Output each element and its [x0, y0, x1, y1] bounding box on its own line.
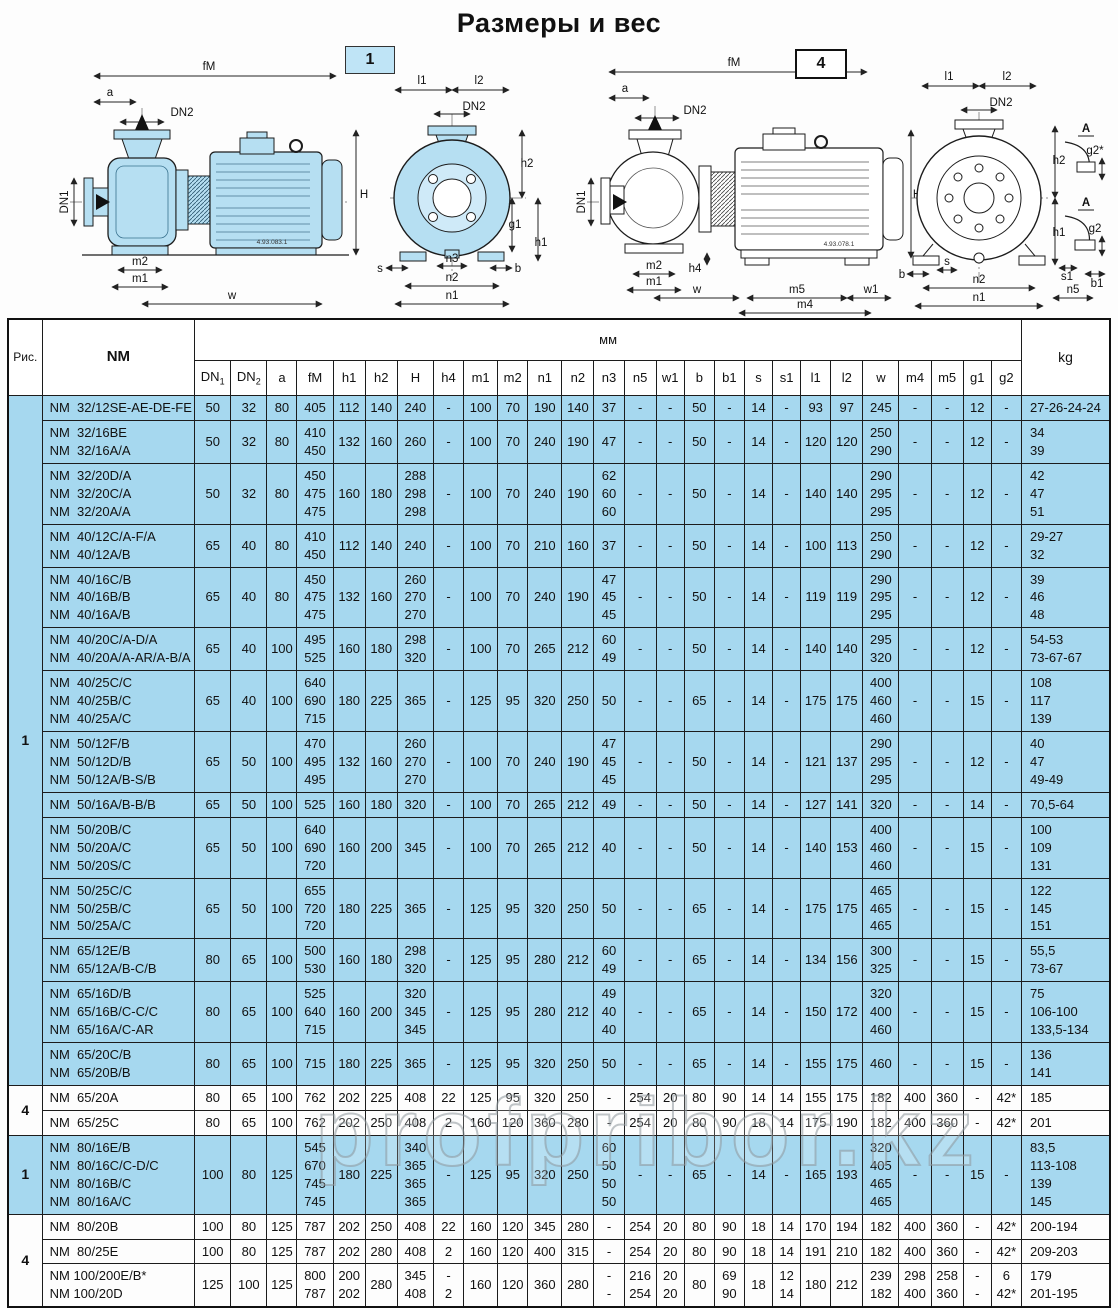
- value-cell: 80: [267, 420, 297, 463]
- value-cell: 15: [963, 1135, 991, 1214]
- model-cell: NM 40/12C/A-F/A NM 40/12A/B: [42, 524, 195, 567]
- value-cell: -: [931, 671, 963, 732]
- value-cell: 14: [744, 878, 772, 939]
- value-cell: 65: [195, 671, 231, 732]
- value-cell: -: [714, 817, 744, 878]
- col-header: g2: [991, 361, 1021, 396]
- value-cell: 65: [684, 1043, 714, 1086]
- value-cell: 50: [195, 420, 231, 463]
- value-cell: 172: [831, 982, 863, 1043]
- value-cell: 240: [528, 420, 562, 463]
- model-header: NM: [42, 319, 195, 396]
- value-cell: 22: [433, 1214, 463, 1239]
- value-cell: -: [433, 939, 463, 982]
- value-cell: -: [433, 628, 463, 671]
- value-cell: 65: [195, 524, 231, 567]
- value-cell: -: [594, 1214, 624, 1239]
- value-cell: -: [773, 878, 801, 939]
- value-cell: 95: [498, 1135, 528, 1214]
- value-cell: 141: [831, 792, 863, 817]
- value-cell: 2: [433, 1110, 463, 1135]
- value-cell: -: [714, 792, 744, 817]
- value-cell: 80: [231, 1239, 267, 1264]
- kg-cell: 100 109 131: [1022, 817, 1110, 878]
- dim-label: l2: [475, 75, 484, 87]
- value-cell: 50: [594, 1043, 624, 1086]
- value-cell: 405: [297, 396, 333, 421]
- table-row: NM 80/25E1008012578720228040821601204003…: [8, 1239, 1110, 1264]
- flow-arrow-up: [648, 115, 662, 130]
- value-cell: -: [991, 463, 1021, 524]
- value-cell: 12: [963, 732, 991, 793]
- value-cell: -: [991, 982, 1021, 1043]
- value-cell: 47 45 45: [594, 732, 624, 793]
- value-cell: 182: [863, 1239, 899, 1264]
- value-cell: -: [991, 420, 1021, 463]
- value-cell: 125: [464, 878, 498, 939]
- value-cell: 250: [562, 1043, 594, 1086]
- terminal-box: [763, 134, 805, 150]
- value-cell: 212: [562, 939, 594, 982]
- value-cell: 50: [684, 396, 714, 421]
- value-cell: 298 400: [899, 1264, 931, 1307]
- detail-label: A: [1082, 197, 1090, 209]
- value-cell: -: [899, 567, 931, 628]
- value-cell: -: [624, 732, 656, 793]
- value-cell: 160: [333, 817, 365, 878]
- value-cell: 112: [333, 396, 365, 421]
- value-cell: 360: [931, 1239, 963, 1264]
- value-cell: 320: [528, 1043, 562, 1086]
- value-cell: 160: [464, 1214, 498, 1239]
- value-cell: 100: [267, 1110, 297, 1135]
- value-cell: 40: [594, 817, 624, 878]
- value-cell: 125: [464, 1043, 498, 1086]
- value-cell: 95: [498, 878, 528, 939]
- value-cell: 250: [562, 878, 594, 939]
- value-cell: 400: [899, 1110, 931, 1135]
- value-cell: 320: [528, 1085, 562, 1110]
- dim-label: n2: [973, 274, 986, 286]
- value-cell: -: [433, 396, 463, 421]
- value-cell: 120: [831, 420, 863, 463]
- value-cell: -: [714, 396, 744, 421]
- col-header: w1: [656, 361, 684, 396]
- dim-label: b: [515, 263, 521, 275]
- model-cell: NM 65/16D/B NM 65/16B/C-C/C NM 65/16A/C-…: [42, 982, 195, 1043]
- value-cell: -: [931, 1135, 963, 1214]
- value-cell: 290 295 295: [863, 463, 899, 524]
- model-cell: NM 40/25C/C NM 40/25B/C NM 40/25A/C: [42, 671, 195, 732]
- value-cell: -: [899, 420, 931, 463]
- value-cell: 240: [397, 524, 433, 567]
- fig-cell: 4: [8, 1085, 42, 1135]
- value-cell: 47 45 45: [594, 567, 624, 628]
- value-cell: 95: [498, 671, 528, 732]
- col-header: n3: [594, 361, 624, 396]
- value-cell: 65: [684, 939, 714, 982]
- value-cell: 190: [562, 463, 594, 524]
- value-cell: 360: [931, 1214, 963, 1239]
- value-cell: 365: [397, 878, 433, 939]
- value-cell: 254: [624, 1214, 656, 1239]
- value-cell: 50: [684, 792, 714, 817]
- value-cell: 180: [333, 671, 365, 732]
- value-cell: 14: [744, 524, 772, 567]
- detail-label: A: [1082, 123, 1090, 135]
- value-cell: 14: [744, 817, 772, 878]
- value-cell: 80: [267, 567, 297, 628]
- col-header: h4: [433, 361, 463, 396]
- table-row: NM 65/20C/B NM 65/20B/B80651007151802253…: [8, 1043, 1110, 1086]
- value-cell: -: [963, 1239, 991, 1264]
- table-row: NM 50/12F/B NM 50/12D/B NM 50/12A/B-S/B6…: [8, 732, 1110, 793]
- value-cell: 460: [863, 1043, 899, 1086]
- value-cell: 112: [333, 524, 365, 567]
- dim-label: l1: [418, 75, 427, 87]
- value-cell: 90: [714, 1214, 744, 1239]
- dimensions-table: Рис.NMммkgDN1DN2afMh1h2Hh4m1m2n1n2n3n5w1…: [7, 318, 1111, 1308]
- dim-label: fM: [203, 61, 216, 73]
- value-cell: -: [656, 982, 684, 1043]
- value-cell: 65: [195, 817, 231, 878]
- value-cell: 212: [562, 982, 594, 1043]
- value-cell: -: [899, 817, 931, 878]
- col-header: DN2: [231, 361, 267, 396]
- value-cell: -: [931, 982, 963, 1043]
- value-cell: -: [991, 396, 1021, 421]
- value-cell: 22: [433, 1085, 463, 1110]
- value-cell: 20: [656, 1239, 684, 1264]
- value-cell: 119: [801, 567, 831, 628]
- value-cell: -: [433, 567, 463, 628]
- value-cell: 125: [267, 1214, 297, 1239]
- value-cell: 50: [684, 732, 714, 793]
- value-cell: -: [931, 524, 963, 567]
- value-cell: 14: [744, 1135, 772, 1214]
- value-cell: 265: [528, 628, 562, 671]
- value-cell: 160: [365, 420, 397, 463]
- value-cell: 90: [714, 1110, 744, 1135]
- value-cell: -: [931, 628, 963, 671]
- value-cell: 280: [562, 1214, 594, 1239]
- value-cell: 400 460 460: [863, 817, 899, 878]
- value-cell: 165: [801, 1135, 831, 1214]
- value-cell: 295 320: [863, 628, 899, 671]
- value-cell: 180: [365, 792, 397, 817]
- value-cell: -: [899, 396, 931, 421]
- value-cell: 100: [267, 817, 297, 878]
- value-cell: 12: [963, 524, 991, 567]
- value-cell: 93: [801, 396, 831, 421]
- value-cell: 175: [801, 1110, 831, 1135]
- col-header: h2: [365, 361, 397, 396]
- value-cell: 15: [963, 671, 991, 732]
- value-cell: -: [899, 982, 931, 1043]
- value-cell: 14: [744, 463, 772, 524]
- value-cell: -: [656, 420, 684, 463]
- value-cell: 119: [831, 567, 863, 628]
- value-cell: 50: [684, 628, 714, 671]
- value-cell: 100: [464, 420, 498, 463]
- value-cell: -: [656, 939, 684, 982]
- kg-cell: 29-27 32: [1022, 524, 1110, 567]
- kg-cell: 179 201-195: [1022, 1264, 1110, 1307]
- dim-label: a: [107, 87, 114, 99]
- value-cell: 125: [464, 1135, 498, 1214]
- value-cell: -: [991, 817, 1021, 878]
- value-cell: 225: [365, 1135, 397, 1214]
- value-cell: -: [963, 1110, 991, 1135]
- value-cell: 70: [498, 396, 528, 421]
- value-cell: 80: [267, 396, 297, 421]
- value-cell: 280: [365, 1264, 397, 1307]
- value-cell: 212: [562, 792, 594, 817]
- value-cell: 12: [963, 463, 991, 524]
- value-cell: 450 475 475: [297, 567, 333, 628]
- kg-cell: 40 47 49-49: [1022, 732, 1110, 793]
- value-cell: 210: [831, 1239, 863, 1264]
- value-cell: 70: [498, 524, 528, 567]
- value-cell: 175: [831, 878, 863, 939]
- dim-label: DN2: [170, 107, 193, 119]
- value-cell: 175: [801, 878, 831, 939]
- kg-cell: 136 141: [1022, 1043, 1110, 1086]
- value-cell: 97: [831, 396, 863, 421]
- value-cell: 65: [195, 567, 231, 628]
- value-cell: 42*: [991, 1085, 1021, 1110]
- value-cell: 70: [498, 732, 528, 793]
- value-cell: 640 690 720: [297, 817, 333, 878]
- dim-label: a: [622, 83, 629, 95]
- value-cell: 100: [267, 792, 297, 817]
- kg-cell: 39 46 48: [1022, 567, 1110, 628]
- value-cell: 50: [195, 463, 231, 524]
- col-header: h1: [333, 361, 365, 396]
- value-cell: 180: [333, 1043, 365, 1086]
- value-cell: 95: [498, 982, 528, 1043]
- value-cell: 320 400 460: [863, 982, 899, 1043]
- value-cell: 212: [562, 628, 594, 671]
- value-cell: 762: [297, 1085, 333, 1110]
- value-cell: -: [714, 524, 744, 567]
- dim-label: DN1: [59, 190, 71, 213]
- value-cell: -: [714, 732, 744, 793]
- value-cell: 65: [231, 982, 267, 1043]
- value-cell: -: [931, 878, 963, 939]
- value-cell: 18: [744, 1239, 772, 1264]
- value-cell: 80: [231, 1135, 267, 1214]
- value-cell: -: [594, 1239, 624, 1264]
- value-cell: 40: [231, 524, 267, 567]
- col-header: H: [397, 361, 433, 396]
- value-cell: -: [899, 1043, 931, 1086]
- value-cell: -: [624, 792, 656, 817]
- value-cell: 320: [397, 792, 433, 817]
- model-cell: NM 32/16BE NM 32/16A/A: [42, 420, 195, 463]
- value-cell: -: [773, 671, 801, 732]
- value-cell: 640 690 715: [297, 671, 333, 732]
- value-cell: 160: [365, 567, 397, 628]
- value-cell: 400 460 460: [863, 671, 899, 732]
- dim-label: DN2: [683, 105, 706, 117]
- value-cell: 408: [397, 1085, 433, 1110]
- value-cell: 80: [684, 1085, 714, 1110]
- dim-label: h1: [1053, 227, 1066, 239]
- value-cell: -: [773, 463, 801, 524]
- table-row: NM 50/20B/C NM 50/20A/C NM 50/20S/C65501…: [8, 817, 1110, 878]
- value-cell: -: [656, 628, 684, 671]
- value-cell: 320: [863, 792, 899, 817]
- value-cell: 70: [498, 792, 528, 817]
- value-cell: 80: [195, 939, 231, 982]
- value-cell: 280: [365, 1239, 397, 1264]
- value-cell: 20: [656, 1085, 684, 1110]
- value-cell: 14: [773, 1214, 801, 1239]
- kg-cell: 70,5-64: [1022, 792, 1110, 817]
- value-cell: -: [656, 463, 684, 524]
- dim-label: n1: [446, 290, 459, 302]
- value-cell: -: [773, 524, 801, 567]
- value-cell: -: [991, 792, 1021, 817]
- value-cell: -: [433, 878, 463, 939]
- pump-diagram-1: fM a DN2 DN1 4.93.083.1: [4, 46, 549, 318]
- value-cell: -: [773, 420, 801, 463]
- value-cell: 408: [397, 1239, 433, 1264]
- dim-label: h4: [689, 263, 702, 275]
- value-cell: -: [773, 396, 801, 421]
- value-cell: 140: [801, 817, 831, 878]
- value-cell: 95: [498, 1085, 528, 1110]
- model-cell: NM 50/20B/C NM 50/20A/C NM 50/20S/C: [42, 817, 195, 878]
- value-cell: 65: [195, 878, 231, 939]
- dim-label: n3: [446, 253, 459, 265]
- value-cell: -: [963, 1214, 991, 1239]
- value-cell: 715: [297, 1043, 333, 1086]
- value-cell: 42*: [991, 1214, 1021, 1239]
- value-cell: 60 49: [594, 939, 624, 982]
- value-cell: 254: [624, 1110, 656, 1135]
- value-cell: 12: [963, 420, 991, 463]
- value-cell: 42*: [991, 1110, 1021, 1135]
- drawing-code: 4.93.083.1: [257, 239, 288, 246]
- value-cell: 408: [397, 1214, 433, 1239]
- value-cell: -: [433, 1135, 463, 1214]
- value-cell: 345 408: [397, 1264, 433, 1307]
- value-cell: 120: [498, 1264, 528, 1307]
- value-cell: -: [714, 1135, 744, 1214]
- value-cell: -: [624, 939, 656, 982]
- value-cell: 410 450: [297, 524, 333, 567]
- value-cell: 140: [801, 463, 831, 524]
- value-cell: -: [433, 420, 463, 463]
- drawing-code: 4.93.078.1: [824, 241, 855, 248]
- value-cell: 190: [831, 1110, 863, 1135]
- value-cell: 37: [594, 524, 624, 567]
- dim-label: b: [899, 269, 905, 281]
- value-cell: 125: [267, 1135, 297, 1214]
- value-cell: 14: [744, 671, 772, 732]
- dim-label: s1: [1061, 271, 1073, 283]
- value-cell: -: [931, 732, 963, 793]
- value-cell: 800 787: [297, 1264, 333, 1307]
- model-cell: NM 50/16A/B-B/B: [42, 792, 195, 817]
- value-cell: 240: [528, 567, 562, 628]
- value-cell: 175: [831, 671, 863, 732]
- dim-label: DN2: [989, 97, 1012, 109]
- value-cell: 40: [231, 628, 267, 671]
- value-cell: 400: [899, 1214, 931, 1239]
- value-cell: 190: [528, 396, 562, 421]
- value-cell: -: [991, 939, 1021, 982]
- value-cell: -: [624, 396, 656, 421]
- value-cell: -: [714, 671, 744, 732]
- kg-cell: 54-53 73-67-67: [1022, 628, 1110, 671]
- value-cell: 400: [899, 1085, 931, 1110]
- value-cell: -: [624, 1043, 656, 1086]
- value-cell: 175: [831, 1043, 863, 1086]
- value-cell: 140: [365, 524, 397, 567]
- value-cell: 160: [464, 1264, 498, 1307]
- value-cell: -: [773, 939, 801, 982]
- value-cell: 100: [267, 671, 297, 732]
- value-cell: 120: [801, 420, 831, 463]
- table-row: NM 50/16A/B-B/B6550100525160180320-10070…: [8, 792, 1110, 817]
- value-cell: 100: [267, 1085, 297, 1110]
- value-cell: 216 254: [624, 1264, 656, 1307]
- value-cell: 49: [594, 792, 624, 817]
- value-cell: 70: [498, 628, 528, 671]
- value-cell: 202: [333, 1239, 365, 1264]
- value-cell: 127: [801, 792, 831, 817]
- value-cell: 193: [831, 1135, 863, 1214]
- value-cell: 290 295 295: [863, 567, 899, 628]
- table-row: NM 40/20C/A-D/A NM 40/20A/A-AR/A-B/A6540…: [8, 628, 1110, 671]
- col-header: l1: [801, 361, 831, 396]
- value-cell: 14: [963, 792, 991, 817]
- value-cell: 80: [231, 1214, 267, 1239]
- table-row: NM 50/25C/C NM 50/25B/C NM 50/25A/C65501…: [8, 878, 1110, 939]
- value-cell: 65: [195, 628, 231, 671]
- value-cell: 180: [365, 463, 397, 524]
- value-cell: 175: [831, 1085, 863, 1110]
- value-cell: 14: [744, 1085, 772, 1110]
- value-cell: 80: [195, 1085, 231, 1110]
- dim-label: DN1: [576, 190, 588, 213]
- value-cell: 212: [831, 1264, 863, 1307]
- value-cell: 450 475 475: [297, 463, 333, 524]
- dim-label: h1: [535, 237, 548, 249]
- value-cell: 14: [744, 567, 772, 628]
- value-cell: 50: [684, 817, 714, 878]
- value-cell: 100: [801, 524, 831, 567]
- value-cell: 155: [801, 1085, 831, 1110]
- value-cell: -: [433, 524, 463, 567]
- value-cell: 260: [397, 420, 433, 463]
- value-cell: 120: [498, 1110, 528, 1135]
- value-cell: 365: [397, 671, 433, 732]
- value-cell: 160: [333, 792, 365, 817]
- value-cell: 260 270 270: [397, 567, 433, 628]
- value-cell: 182: [863, 1110, 899, 1135]
- value-cell: 495 525: [297, 628, 333, 671]
- value-cell: 60 50 50 50: [594, 1135, 624, 1214]
- value-cell: -: [624, 628, 656, 671]
- value-cell: 180: [365, 939, 397, 982]
- value-cell: 137: [831, 732, 863, 793]
- value-cell: 100: [195, 1135, 231, 1214]
- value-cell: 125: [267, 1239, 297, 1264]
